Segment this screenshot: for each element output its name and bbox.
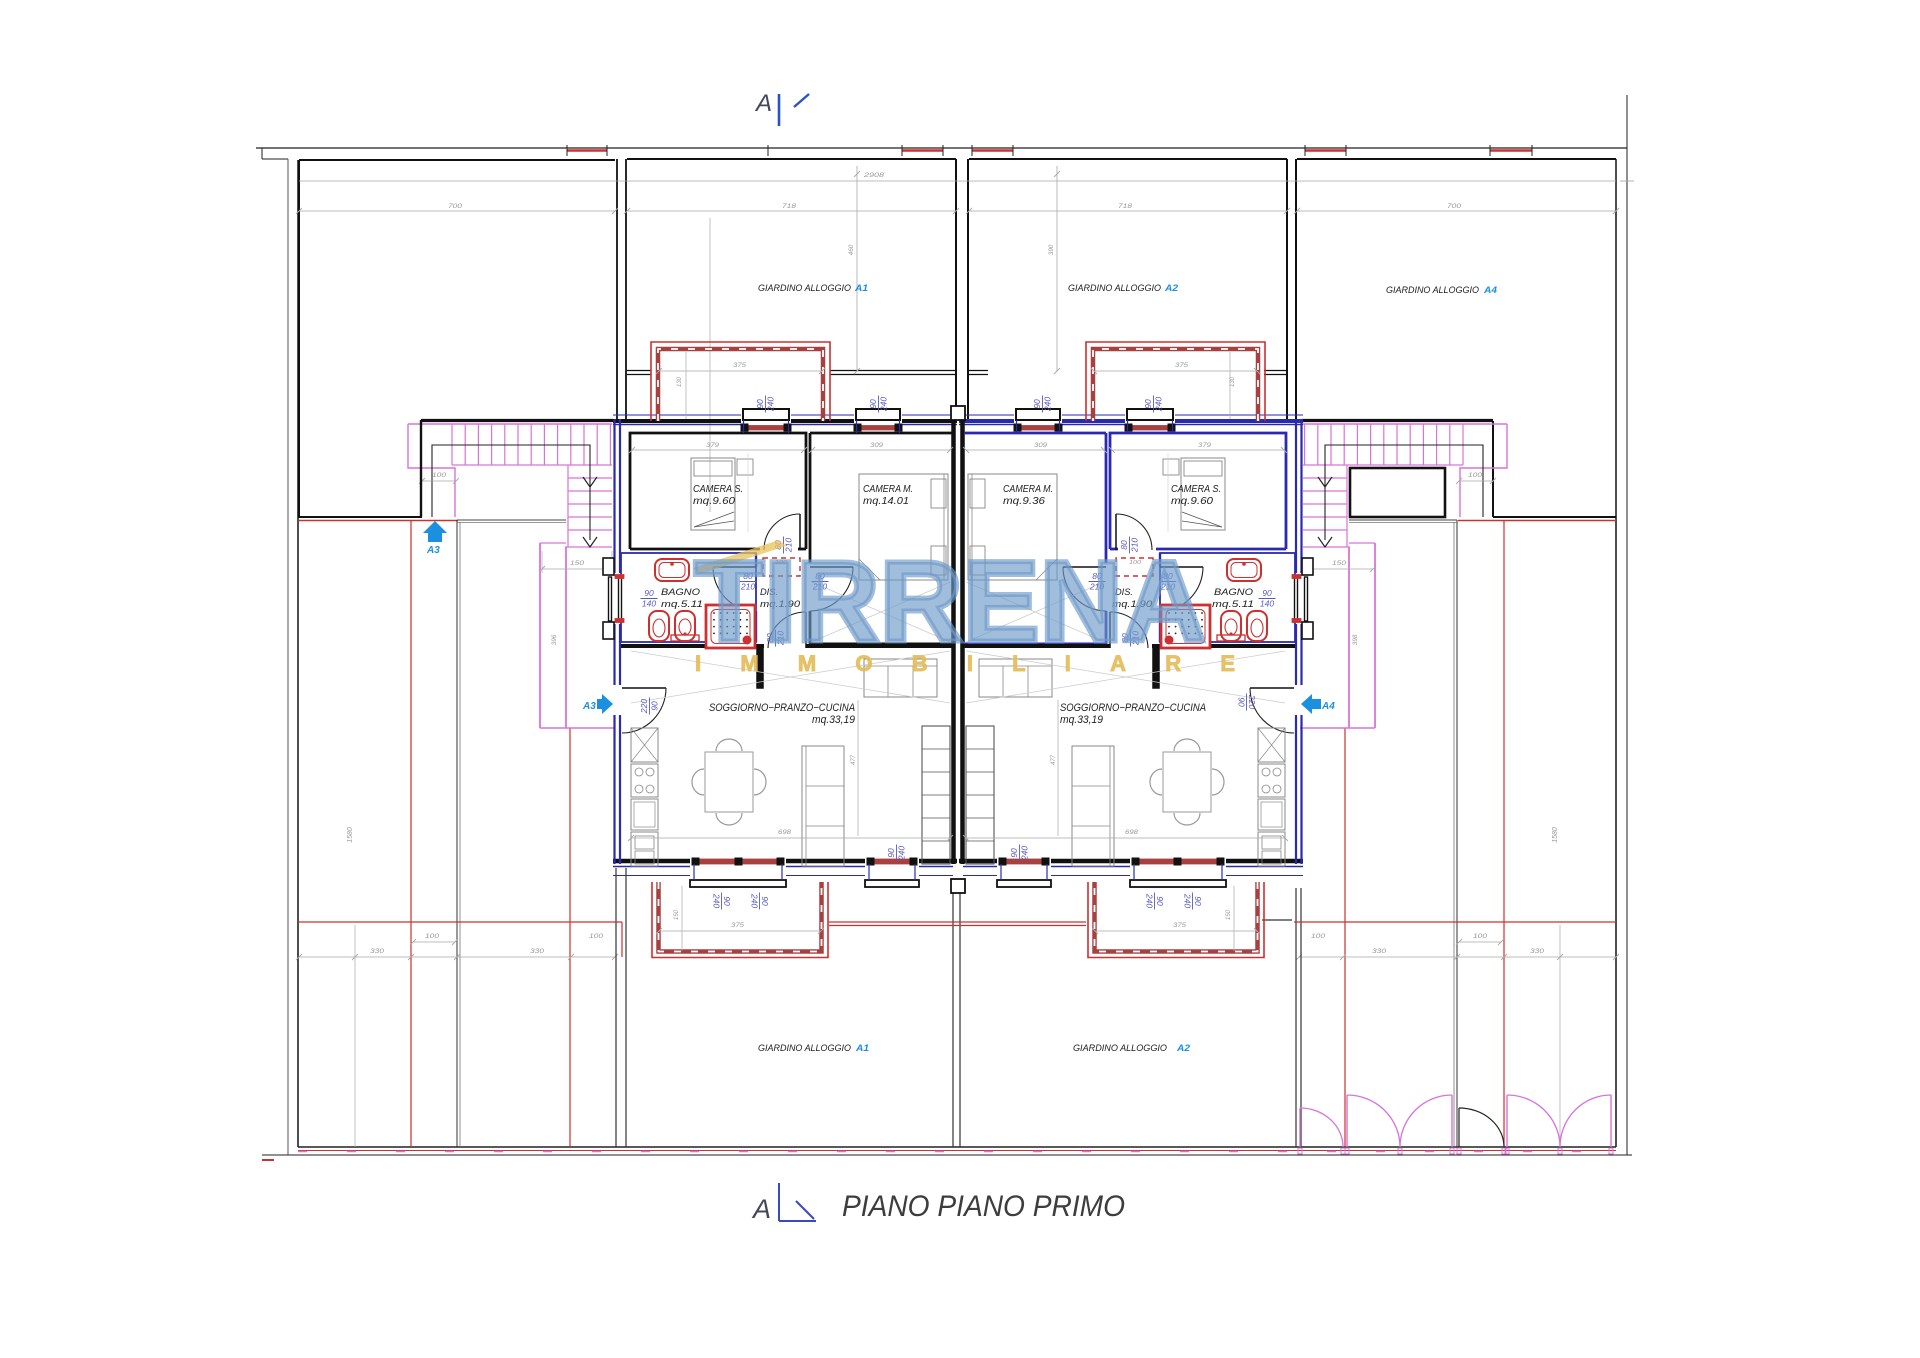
svg-text:GIARDINO ALLOGGIO: GIARDINO ALLOGGIO	[758, 1043, 852, 1054]
svg-text:100: 100	[1311, 933, 1325, 940]
svg-text:477: 477	[851, 754, 857, 765]
svg-text:90: 90	[1193, 896, 1203, 906]
svg-text:GIARDINO ALLOGGIO: GIARDINO ALLOGGIO	[1068, 283, 1162, 294]
svg-text:330: 330	[1530, 948, 1544, 955]
svg-text:PIANO PIANO PRIMO: PIANO PIANO PRIMO	[842, 1190, 1125, 1223]
svg-text:396: 396	[551, 634, 558, 645]
svg-text:90: 90	[1237, 697, 1247, 707]
svg-text:150: 150	[1226, 909, 1232, 920]
svg-text:GIARDINO ALLOGGIO: GIARDINO ALLOGGIO	[758, 283, 852, 294]
svg-text:398: 398	[1352, 634, 1359, 645]
svg-text:240: 240	[712, 893, 722, 908]
svg-text:375: 375	[733, 363, 747, 369]
svg-text:330: 330	[530, 948, 544, 955]
svg-text:698: 698	[778, 830, 792, 836]
svg-text:718: 718	[1118, 203, 1132, 210]
svg-text:100: 100	[1468, 472, 1482, 479]
svg-text:379: 379	[706, 443, 720, 449]
svg-text:mq.14.01: mq.14.01	[863, 496, 909, 507]
svg-text:A2: A2	[1164, 283, 1179, 294]
svg-text:90: 90	[1155, 896, 1165, 906]
svg-text:1580: 1580	[347, 827, 354, 843]
svg-text:90: 90	[886, 848, 896, 858]
svg-text:150: 150	[674, 909, 680, 920]
svg-text:330: 330	[370, 948, 384, 955]
svg-text:240: 240	[766, 397, 776, 412]
svg-text:375: 375	[1173, 923, 1187, 929]
svg-text:309: 309	[870, 443, 884, 449]
svg-text:A4: A4	[1321, 701, 1335, 712]
svg-text:130: 130	[1230, 376, 1236, 387]
svg-text:698: 698	[1125, 830, 1139, 836]
svg-text:140: 140	[642, 599, 656, 609]
svg-text:1580: 1580	[1552, 827, 1559, 843]
svg-text:CAMERA M.: CAMERA M.	[863, 484, 913, 495]
svg-text:mq.9.36: mq.9.36	[1003, 496, 1046, 507]
svg-text:90: 90	[868, 399, 878, 409]
svg-text:90: 90	[760, 896, 770, 906]
svg-text:90: 90	[722, 896, 732, 906]
svg-text:309: 309	[1034, 443, 1048, 449]
svg-text:90: 90	[650, 701, 660, 711]
svg-text:BAGNO: BAGNO	[1214, 587, 1254, 598]
svg-text:240: 240	[750, 893, 760, 908]
svg-text:375: 375	[731, 923, 745, 929]
svg-text:240: 240	[1183, 893, 1193, 908]
svg-text:477: 477	[1051, 754, 1057, 765]
svg-text:SOGGIORNO−PRANZO−CUCINA: SOGGIORNO−PRANZO−CUCINA	[709, 702, 855, 714]
svg-text:90: 90	[644, 588, 654, 598]
svg-text:140: 140	[1260, 599, 1274, 609]
svg-text:700: 700	[448, 203, 462, 210]
svg-text:240: 240	[879, 397, 889, 412]
svg-text:CAMERA S.: CAMERA S.	[1171, 484, 1221, 495]
svg-text:mq.33,19: mq.33,19	[812, 714, 855, 726]
svg-text:718: 718	[782, 203, 796, 210]
svg-text:379: 379	[1198, 443, 1212, 449]
svg-text:240: 240	[1020, 846, 1030, 861]
svg-text:A: A	[754, 90, 772, 117]
svg-text:90: 90	[1262, 588, 1272, 598]
svg-text:240: 240	[1043, 397, 1053, 412]
svg-text:100: 100	[432, 472, 446, 479]
svg-text:A4: A4	[1483, 285, 1498, 296]
svg-text:CAMERA S.: CAMERA S.	[693, 484, 743, 495]
svg-text:100: 100	[589, 933, 603, 940]
svg-text:100: 100	[1473, 933, 1487, 940]
svg-text:375: 375	[1175, 363, 1189, 369]
svg-text:mq.5.11: mq.5.11	[1212, 599, 1254, 610]
svg-text:90: 90	[1009, 848, 1019, 858]
svg-text:mq.9.60: mq.9.60	[693, 496, 736, 507]
svg-text:90: 90	[755, 399, 765, 409]
svg-text:A3: A3	[582, 701, 596, 712]
svg-text:220: 220	[1247, 694, 1257, 709]
svg-text:240: 240	[1145, 893, 1155, 908]
svg-text:A1: A1	[855, 1043, 869, 1054]
svg-text:700: 700	[1447, 203, 1461, 210]
svg-text:330: 330	[1372, 948, 1386, 955]
svg-text:150: 150	[570, 560, 584, 567]
svg-text:100: 100	[425, 933, 439, 940]
svg-text:220: 220	[639, 699, 649, 714]
svg-text:150: 150	[1332, 560, 1346, 567]
svg-text:390: 390	[1048, 244, 1055, 255]
svg-text:mq.33,19: mq.33,19	[1060, 714, 1103, 726]
svg-text:130: 130	[677, 376, 683, 387]
svg-text:A: A	[751, 1194, 771, 1224]
svg-text:A1: A1	[854, 283, 868, 294]
svg-text:GIARDINO ALLOGGIO: GIARDINO ALLOGGIO	[1073, 1043, 1168, 1054]
svg-text:460: 460	[848, 244, 855, 255]
svg-text:A3: A3	[426, 545, 440, 556]
svg-text:GIARDINO ALLOGGIO: GIARDINO ALLOGGIO	[1386, 285, 1480, 296]
svg-text:2908: 2908	[863, 172, 885, 179]
svg-text:240: 240	[1154, 397, 1164, 412]
svg-text:mq.9.60: mq.9.60	[1171, 496, 1214, 507]
svg-text:240: 240	[897, 846, 907, 861]
svg-text:90: 90	[1143, 399, 1153, 409]
svg-text:A2: A2	[1176, 1043, 1191, 1054]
svg-text:CAMERA M.: CAMERA M.	[1003, 484, 1053, 495]
svg-text:90: 90	[1032, 399, 1042, 409]
svg-text:TIRRENA: TIRRENA	[694, 538, 1206, 666]
svg-text:SOGGIORNO−PRANZO−CUCINA: SOGGIORNO−PRANZO−CUCINA	[1060, 702, 1206, 714]
